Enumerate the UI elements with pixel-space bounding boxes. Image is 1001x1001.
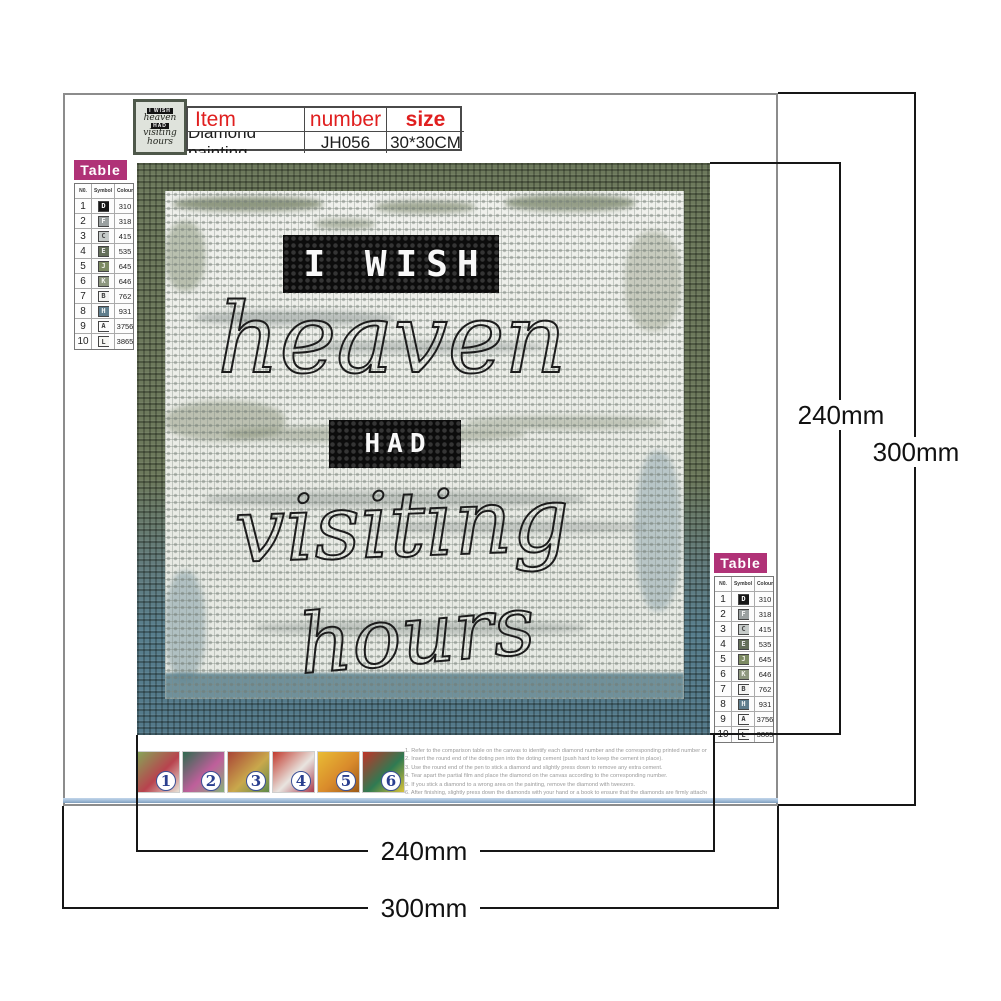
row-number: 1: [75, 199, 92, 213]
symbol-chip: J: [98, 261, 109, 272]
canvas-word-box-had: HAD: [329, 420, 461, 468]
dim-240-right-top-tick: [710, 162, 840, 164]
symbol-cell: B: [92, 289, 115, 303]
colour-code: 535: [115, 244, 135, 258]
symbol-chip: H: [738, 699, 749, 710]
color-table-right: Table N0. Symbol Colour 1D3102F3183C4154…: [714, 553, 774, 743]
instructions-block: 1. Refer to the comparison table on the …: [405, 747, 707, 799]
color-table-row: 3C415: [715, 622, 773, 637]
instruction-line: 2. Insert the round end of the doting pe…: [405, 755, 707, 763]
symbol-cell: J: [732, 652, 755, 666]
canvas-word-1: I WISH: [294, 244, 487, 285]
colour-code: 535: [755, 637, 775, 651]
col-no: N0.: [715, 577, 732, 591]
product-sheet-page: I WISH heaven HAD visiting hours Item nu…: [0, 0, 1001, 1001]
symbol-chip: C: [738, 624, 749, 635]
row-number: 4: [715, 637, 732, 651]
color-table-row: 7B762: [75, 289, 133, 304]
colour-code: 415: [115, 229, 135, 243]
symbol-cell: F: [92, 214, 115, 228]
row-number: 10: [75, 334, 92, 349]
step-photo-1: 1: [137, 751, 180, 793]
colour-code: 645: [755, 652, 775, 666]
row-number: 5: [715, 652, 732, 666]
symbol-cell: L: [92, 334, 115, 349]
instruction-line: 3. Use the round end of the pen to stick…: [405, 764, 707, 772]
step-number-badge: 3: [246, 771, 266, 791]
symbol-chip: K: [98, 276, 109, 287]
symbol-cell: F: [732, 607, 755, 621]
instruction-line: 6. After finishing, slightly press down …: [405, 789, 707, 797]
color-table-row: 9A3756: [75, 319, 133, 334]
instruction-line: 5. If you stick a diamond to a wrong are…: [405, 781, 707, 789]
step-number-badge: 4: [291, 771, 311, 791]
item-header: Item: [188, 108, 305, 132]
color-table-left-title: Table: [74, 160, 127, 180]
dim-240-right-line: [839, 162, 841, 735]
color-table-row: 2F318: [715, 607, 773, 622]
dim-label-canvas-height: 240mm: [795, 400, 887, 430]
item-value: Diamond painting: [188, 132, 305, 153]
symbol-cell: D: [732, 592, 755, 606]
row-number: 6: [75, 274, 92, 288]
colour-code: 318: [755, 607, 775, 621]
artwork-thumbnail: I WISH heaven HAD visiting hours: [133, 99, 187, 155]
col-symbol: Symbol: [92, 184, 115, 198]
row-number: 4: [75, 244, 92, 258]
colour-code: 310: [755, 592, 775, 606]
symbol-cell: K: [92, 274, 115, 288]
col-colour: Colour: [115, 184, 135, 198]
dim-300-right-top-tick: [778, 92, 916, 94]
canvas-word-box-i-wish: I WISH: [283, 235, 499, 293]
row-number: 9: [75, 319, 92, 333]
color-table-row: 6K646: [75, 274, 133, 289]
colour-code: 415: [755, 622, 775, 636]
symbol-cell: J: [92, 259, 115, 273]
dim-240-bottom-right-tick: [713, 735, 715, 852]
thumb-word-2: heaven: [144, 114, 177, 123]
symbol-chip: D: [98, 201, 109, 212]
step-photo-4: 4: [272, 751, 315, 793]
color-table-row: 6K646: [715, 667, 773, 682]
color-table-right-title: Table: [714, 553, 767, 573]
symbol-chip: D: [738, 594, 749, 605]
symbol-cell: K: [732, 667, 755, 681]
symbol-chip: A: [98, 321, 109, 332]
symbol-cell: A: [732, 712, 755, 726]
color-table-header-row: N0. Symbol Colour: [75, 184, 133, 199]
color-table-row: 1D310: [715, 592, 773, 607]
color-table-left: Table N0. Symbol Colour 1D3102F3183C4154…: [74, 160, 134, 350]
row-number: 1: [715, 592, 732, 606]
row-number: 7: [75, 289, 92, 303]
symbol-chip: B: [98, 291, 109, 302]
col-colour: Colour: [755, 577, 775, 591]
colour-code: 762: [115, 289, 135, 303]
row-number: 9: [715, 712, 732, 726]
colour-code: 931: [115, 304, 135, 318]
symbol-cell: E: [732, 637, 755, 651]
canvas-word-4: visiting: [176, 473, 629, 579]
colour-code: 646: [755, 667, 775, 681]
colour-code: 646: [115, 274, 135, 288]
symbol-chip: E: [738, 639, 749, 650]
color-table-row: 4E535: [715, 637, 773, 652]
color-table-row: 7B762: [715, 682, 773, 697]
symbol-chip: H: [98, 306, 109, 317]
canvas-word-2: heaven: [192, 291, 592, 387]
col-no: N0.: [75, 184, 92, 198]
symbol-cell: C: [92, 229, 115, 243]
row-number: 7: [715, 682, 732, 696]
symbol-chip: J: [738, 654, 749, 665]
step-photo-5: 5: [317, 751, 360, 793]
dim-300-right-bottom-tick: [778, 804, 916, 806]
symbol-chip: K: [738, 669, 749, 680]
colour-code: 318: [115, 214, 135, 228]
step-number-badge: 1: [156, 771, 176, 791]
symbol-chip: L: [98, 336, 109, 347]
colour-code: 762: [755, 682, 775, 696]
size-header: size: [387, 108, 464, 132]
color-table-header-row: N0. Symbol Colour: [715, 577, 773, 592]
instruction-line: 4. Tear apart the partial film and place…: [405, 772, 707, 780]
row-number: 3: [715, 622, 732, 636]
row-number: 2: [715, 607, 732, 621]
row-number: 8: [75, 304, 92, 318]
color-table-row: 3C415: [75, 229, 133, 244]
symbol-cell: D: [92, 199, 115, 213]
color-table-row: 10L3865: [75, 334, 133, 349]
dim-240-right-bottom-tick: [710, 733, 841, 735]
colour-code: 310: [115, 199, 135, 213]
symbol-chip: C: [98, 231, 109, 242]
step-number-badge: 2: [201, 771, 221, 791]
number-header: number: [305, 108, 387, 132]
dim-label-canvas-width: 240mm: [368, 836, 480, 864]
colour-code: 3756: [755, 712, 775, 726]
row-number: 8: [715, 697, 732, 711]
symbol-cell: A: [92, 319, 115, 333]
symbol-chip: F: [738, 609, 749, 620]
row-number: 2: [75, 214, 92, 228]
symbol-cell: C: [732, 622, 755, 636]
color-table-row: 2F318: [75, 214, 133, 229]
step-number-badge: 5: [336, 771, 356, 791]
colour-code: 931: [755, 697, 775, 711]
instruction-line: 1. Refer to the comparison table on the …: [405, 747, 707, 755]
color-table-row: 9A3756: [715, 712, 773, 727]
colour-code: 645: [115, 259, 135, 273]
thumb-word-5: hours: [147, 138, 173, 147]
color-table-row: 4E535: [75, 244, 133, 259]
step-photo-3: 3: [227, 751, 270, 793]
row-number: 5: [75, 259, 92, 273]
symbol-chip: E: [98, 246, 109, 257]
step-photo-6: 6: [362, 751, 405, 793]
number-value: JH056: [305, 132, 387, 153]
symbol-cell: E: [92, 244, 115, 258]
dim-300-bottom-right-tick: [777, 806, 779, 909]
color-table-row: 5J645: [75, 259, 133, 274]
symbol-chip: B: [738, 684, 749, 695]
dim-label-sheet-width: 300mm: [368, 893, 480, 921]
symbol-chip: A: [738, 714, 749, 725]
dim-label-sheet-height: 300mm: [869, 437, 963, 467]
symbol-cell: B: [732, 682, 755, 696]
dim-240-bottom-left-tick: [136, 735, 138, 852]
size-value: 30*30CM: [387, 132, 464, 153]
col-symbol: Symbol: [732, 577, 755, 591]
canvas-word-3: HAD: [358, 429, 433, 459]
colour-code: 3756: [115, 319, 135, 333]
diamond-painting-canvas: I WISH heaven HAD visiting hours: [137, 163, 710, 735]
color-table-left-body: N0. Symbol Colour 1D3102F3183C4154E5355J…: [74, 183, 134, 350]
color-table-row: 8H931: [75, 304, 133, 319]
item-spec-table: Item number size Diamond painting JH056 …: [186, 106, 462, 151]
dim-300-bottom-left-tick: [62, 806, 64, 909]
symbol-cell: H: [732, 697, 755, 711]
row-number: 6: [715, 667, 732, 681]
row-number: 3: [75, 229, 92, 243]
step-photo-2: 2: [182, 751, 225, 793]
colour-code: 3865: [115, 334, 135, 349]
color-table-row: 5J645: [715, 652, 773, 667]
symbol-cell: H: [92, 304, 115, 318]
symbol-chip: F: [98, 216, 109, 227]
color-table-row: 1D310: [75, 199, 133, 214]
step-number-badge: 6: [381, 771, 401, 791]
color-table-row: 8H931: [715, 697, 773, 712]
color-table-right-body: N0. Symbol Colour 1D3102F3183C4154E5355J…: [714, 576, 774, 743]
